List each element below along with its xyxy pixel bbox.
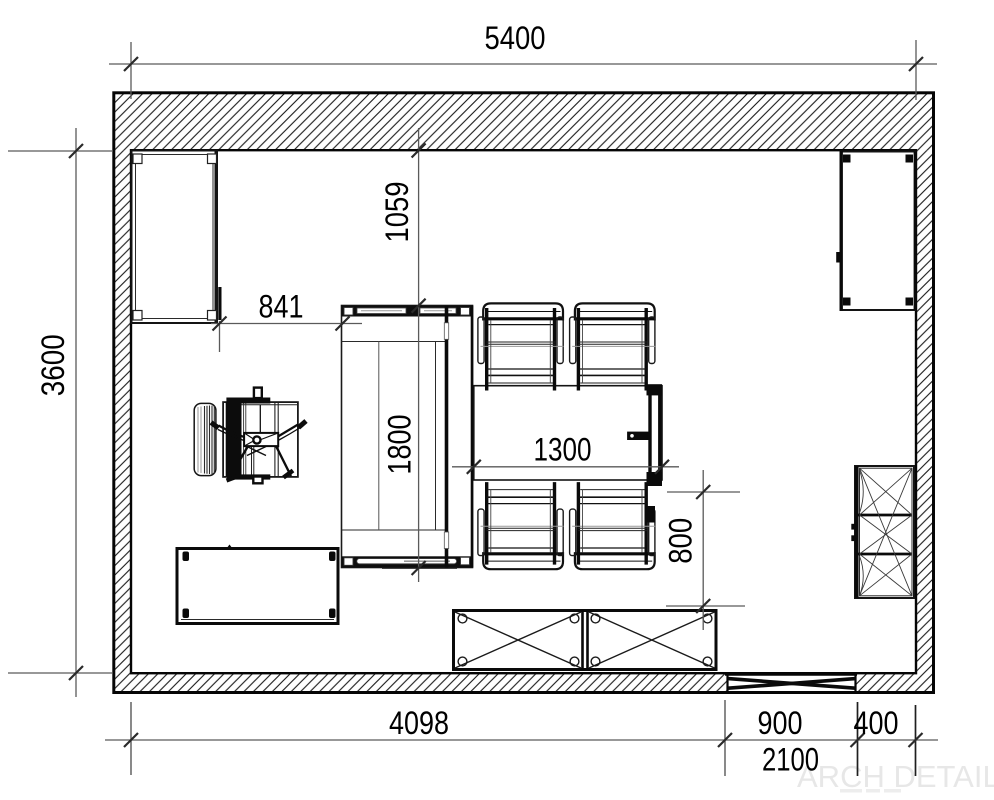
svg-text:800: 800 <box>663 518 699 564</box>
svg-text:900: 900 <box>758 705 803 741</box>
svg-text:ARCH DETAIL: ARCH DETAIL <box>797 759 994 794</box>
svg-text:3600: 3600 <box>35 334 71 396</box>
svg-text:1300: 1300 <box>534 431 592 467</box>
svg-text:4098: 4098 <box>389 705 449 741</box>
svg-text:400: 400 <box>854 705 899 741</box>
svg-text:841: 841 <box>259 289 304 325</box>
svg-text:5400: 5400 <box>485 20 546 56</box>
svg-text:2100: 2100 <box>762 742 819 778</box>
svg-text:1059: 1059 <box>379 182 415 243</box>
svg-text:1800: 1800 <box>382 415 418 475</box>
